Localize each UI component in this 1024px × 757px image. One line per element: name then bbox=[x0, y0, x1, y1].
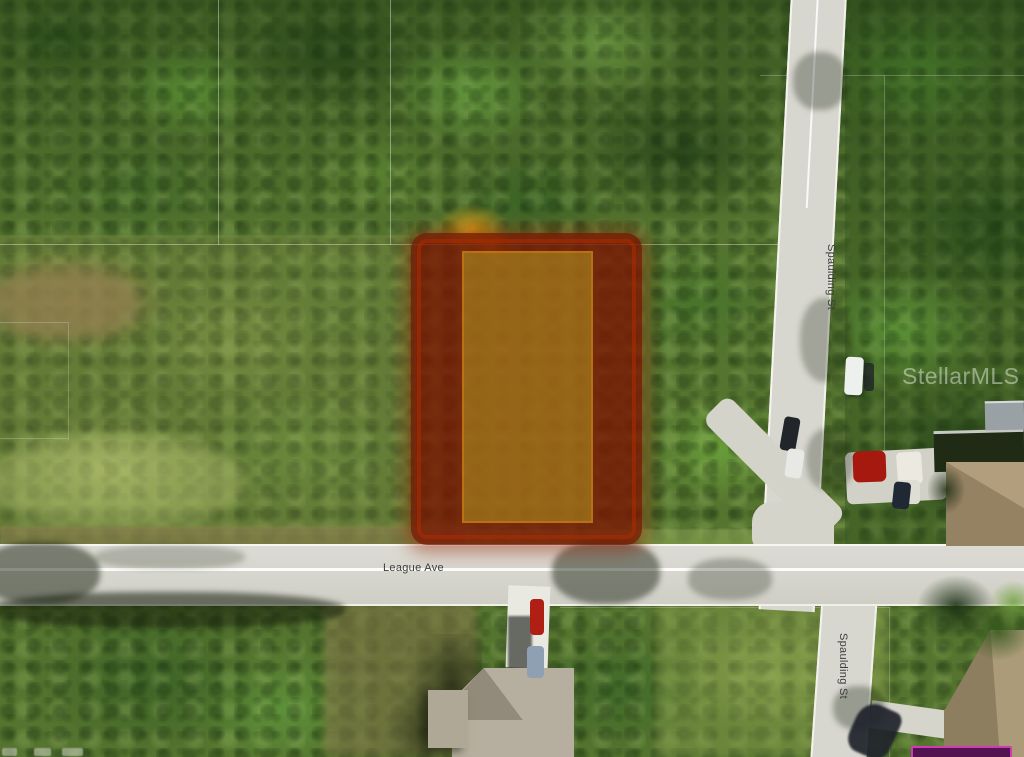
red-car bbox=[530, 599, 544, 635]
tree-shadow bbox=[800, 298, 852, 382]
tree-canopy-overlay bbox=[908, 572, 1024, 672]
aerial-map-canvas: League Ave Spaulding St Spaulding St Ste… bbox=[0, 0, 1024, 757]
street-label-spaulding-st-lower: Spaulding St bbox=[837, 633, 849, 699]
red-suv bbox=[852, 450, 886, 482]
highlighted-lot-interior bbox=[462, 251, 593, 523]
parcel-line-horizontal-4 bbox=[0, 322, 68, 323]
tree-shadow bbox=[806, 428, 854, 490]
parcel-line-horizontal-5 bbox=[0, 438, 68, 439]
tree-shadow bbox=[688, 558, 772, 600]
shed bbox=[985, 401, 1024, 431]
parcel-line-vertical-1 bbox=[218, 0, 219, 245]
house-bottom-center-wing bbox=[428, 690, 468, 748]
cropped-attribution-fragment bbox=[2, 748, 17, 756]
parcel-line-vertical-5 bbox=[68, 322, 69, 440]
parcel-line-vertical-2 bbox=[390, 0, 391, 245]
cropped-attribution-fragment bbox=[34, 748, 51, 756]
parcel-line-horizontal-1 bbox=[0, 244, 800, 245]
tree-shadow bbox=[95, 545, 245, 569]
parcel-line-vertical-3 bbox=[884, 75, 885, 460]
street-label-league-ave: League Ave bbox=[383, 562, 444, 574]
white-car bbox=[844, 357, 864, 396]
dark-vehicle-shadow bbox=[864, 363, 874, 391]
stellar-mls-watermark: StellarMLS bbox=[902, 363, 1019, 390]
tree-shadow bbox=[552, 540, 660, 604]
dark-trailer bbox=[892, 481, 912, 510]
tree-canopy-overlay bbox=[928, 464, 968, 516]
street-label-spaulding-st-upper: Spaulding St bbox=[825, 244, 837, 310]
cropped-magenta-tag bbox=[911, 746, 1012, 757]
tree-shadow-south-verge bbox=[0, 592, 345, 628]
gray-blue-car bbox=[527, 646, 544, 678]
tree-shadow bbox=[793, 52, 847, 110]
intersection-corner-apron bbox=[752, 502, 834, 550]
cropped-attribution-fragment bbox=[62, 748, 83, 756]
